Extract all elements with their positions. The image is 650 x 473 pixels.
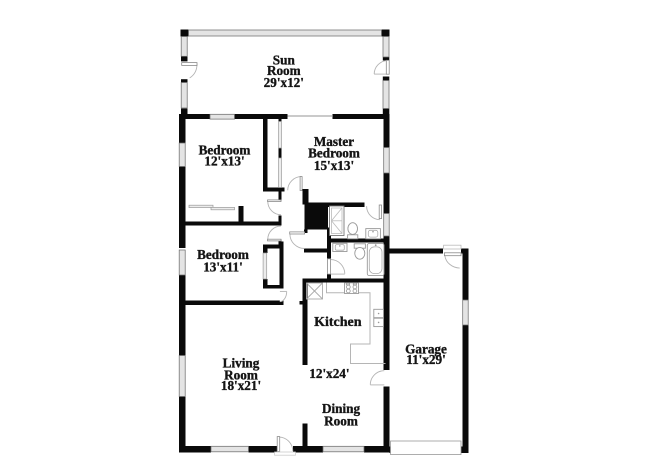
svg-text:15'x13': 15'x13' xyxy=(314,158,354,173)
svg-text:11'x29': 11'x29' xyxy=(406,352,446,367)
svg-text:12'x24': 12'x24' xyxy=(309,366,349,381)
svg-text:Kitchen: Kitchen xyxy=(314,315,362,330)
svg-text:Room: Room xyxy=(324,413,358,428)
svg-text:13'x11': 13'x11' xyxy=(203,260,243,275)
svg-text:12'x13': 12'x13' xyxy=(204,154,244,169)
svg-text:18'x21': 18'x21' xyxy=(221,378,261,393)
svg-text:29'x12': 29'x12' xyxy=(264,75,304,90)
